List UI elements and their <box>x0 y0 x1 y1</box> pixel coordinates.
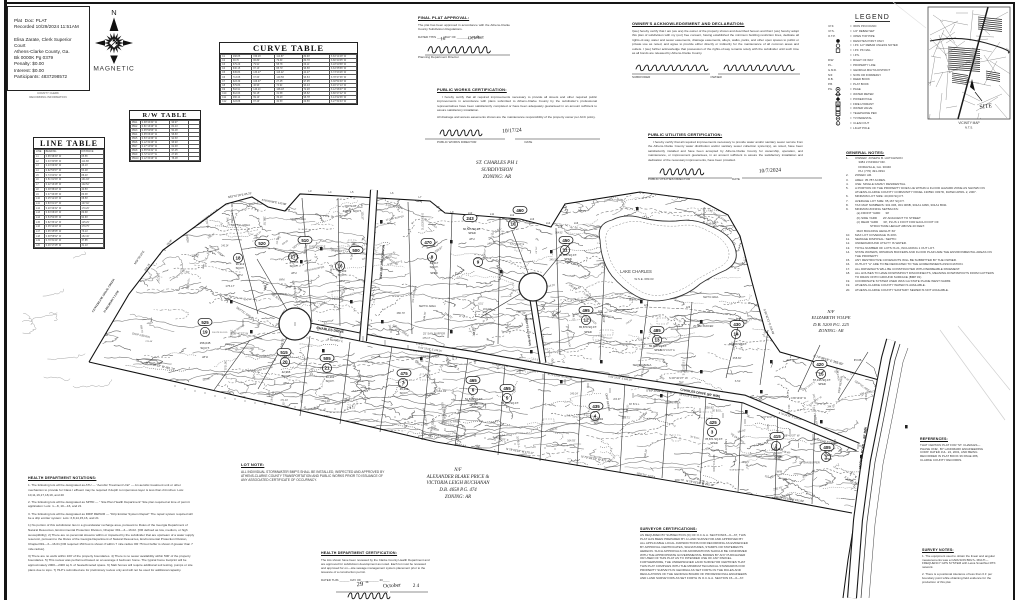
svg-text:118.29': 118.29' <box>547 284 556 289</box>
svg-text:S 81°19'23" E: S 81°19'23" E <box>385 203 403 211</box>
svg-text:N 08°32'07" E: N 08°32'07" E <box>136 395 153 409</box>
svg-text:N 79°33'33" W 477.44': N 79°33'33" W 477.44' <box>581 454 612 463</box>
svg-text:W.S.E. 683.03: W.S.E. 683.03 <box>634 277 654 281</box>
svg-text:280.70': 280.70' <box>397 311 406 315</box>
svg-text:475: 475 <box>400 371 408 376</box>
svg-text:CENTERLINE SHOAL CREEK: CENTERLINE SHOAL CREEK <box>92 278 116 313</box>
svg-text:DRIP REPAIR: DRIP REPAIR <box>875 276 892 289</box>
svg-text:430: 430 <box>733 322 741 327</box>
svg-text:249.31': 249.31' <box>868 330 878 339</box>
svg-text:2642.42: 2642.42 <box>454 442 466 449</box>
svg-text:44,039. SQ.FT.: 44,039. SQ.FT. <box>343 209 362 213</box>
svg-text:DRIP REPAIR: DRIP REPAIR <box>365 455 382 459</box>
svg-text:240.24': 240.24' <box>487 240 497 246</box>
svg-text:N: N <box>111 8 116 17</box>
svg-text:SP&D: SP&D <box>430 271 438 275</box>
svg-text:P.O.B.: P.O.B. <box>854 358 863 362</box>
svg-text:244.70': 244.70' <box>513 491 516 499</box>
svg-text:244.70': 244.70' <box>787 359 796 362</box>
svg-text:OUTLOT A: OUTLOT A <box>345 204 360 208</box>
svg-text:203.97': 203.97' <box>202 377 211 382</box>
svg-text:N58°28'19"E: N58°28'19"E <box>133 250 145 265</box>
svg-text:17: 17 <box>290 255 296 260</box>
svg-text:S 57°20'17" E: S 57°20'17" E <box>761 417 775 419</box>
svg-text:3: 3 <box>711 430 714 435</box>
svg-text:10/17/24: 10/17/24 <box>502 127 522 134</box>
svg-text:271.40': 271.40' <box>280 399 288 402</box>
svg-text:271.40': 271.40' <box>572 481 580 483</box>
svg-text:240.24': 240.24' <box>626 319 634 325</box>
svg-text:148.49': 148.49' <box>833 341 843 350</box>
svg-text:ATU: ATU <box>202 355 208 359</box>
svg-text:13: 13 <box>654 338 660 343</box>
svg-text:SP&D: SP&D <box>710 441 718 445</box>
svg-text:DRIP REPAIR: DRIP REPAIR <box>581 473 599 481</box>
svg-text:164.93': 164.93' <box>870 219 873 227</box>
svg-text:S 81°19'23" E: S 81°19'23" E <box>202 415 217 418</box>
svg-text:495: 495 <box>582 308 590 313</box>
svg-text:7: 7 <box>402 381 405 386</box>
svg-text:N 08°32'07" E: N 08°32'07" E <box>228 475 245 479</box>
svg-text:243: 243 <box>466 216 474 221</box>
svg-text:S 81°19'23" E: S 81°19'23" E <box>790 210 806 223</box>
svg-text:ATU: ATU <box>237 273 242 277</box>
svg-text:118.29': 118.29' <box>887 451 893 461</box>
svg-text:18: 18 <box>235 256 241 261</box>
svg-text:L15: L15 <box>558 225 563 229</box>
svg-text:280.70': 280.70' <box>620 484 630 490</box>
svg-text:175.17': 175.17' <box>681 484 689 486</box>
svg-text:30' B.S.L.: 30' B.S.L. <box>515 436 521 449</box>
svg-text:470: 470 <box>424 240 432 245</box>
svg-text:SEPTIC AREA: SEPTIC AREA <box>840 221 856 234</box>
svg-text:S 57°20'17" E: S 57°20'17" E <box>305 488 319 490</box>
svg-text:SEPTIC AREA: SEPTIC AREA <box>703 296 719 299</box>
svg-text:9: 9 <box>477 260 480 265</box>
svg-text:249.31': 249.31' <box>524 470 534 476</box>
svg-text:520: 520 <box>258 241 266 246</box>
svg-text:280.70': 280.70' <box>791 253 795 263</box>
svg-text:249.31': 249.31' <box>328 264 334 274</box>
svg-text:L22: L22 <box>644 303 649 307</box>
svg-text:DRIP REPAIR: DRIP REPAIR <box>651 497 666 500</box>
svg-text:465: 465 <box>469 378 477 383</box>
svg-text:L7: L7 <box>419 195 422 199</box>
svg-text:115.37': 115.37' <box>253 403 261 406</box>
svg-text:October: October <box>468 35 485 41</box>
svg-text:203.97': 203.97' <box>856 277 860 286</box>
svg-text:S 81°19'23" E: S 81°19'23" E <box>294 412 313 420</box>
svg-text:296.90': 296.90' <box>271 467 275 476</box>
svg-text:175.17': 175.17' <box>886 211 892 221</box>
svg-text:455: 455 <box>503 386 511 391</box>
svg-text:SP&D: SP&D <box>564 257 572 261</box>
svg-text:SP&D: SP&D <box>470 402 478 406</box>
svg-text:SEPTIC AREA: SEPTIC AREA <box>665 402 681 405</box>
svg-text:25' SAN BUFFER: 25' SAN BUFFER <box>304 265 325 273</box>
svg-text:164.93': 164.93' <box>426 485 435 489</box>
svg-text:25' SAN BUFFER: 25' SAN BUFFER <box>385 215 404 222</box>
svg-text:450: 450 <box>562 238 570 243</box>
svg-text:460: 460 <box>516 208 524 213</box>
svg-text:S 08°40'37" W: S 08°40'37" W <box>840 219 858 227</box>
svg-text:4: 4 <box>594 414 597 419</box>
svg-text:DRIP REPAIR: DRIP REPAIR <box>830 292 845 298</box>
svg-text:258.82': 258.82' <box>366 448 376 457</box>
svg-text:51,818 SQ.FT.: 51,818 SQ.FT. <box>465 397 483 401</box>
svg-text:S 81°19'23" E: S 81°19'23" E <box>875 299 882 317</box>
svg-text:W/M: W/M <box>560 491 567 496</box>
svg-text:ATU: ATU <box>469 237 474 241</box>
svg-text:30' B.S.L.: 30' B.S.L. <box>690 435 701 440</box>
svg-text:W/M: W/M <box>279 277 285 281</box>
svg-text:148.49': 148.49' <box>266 432 274 438</box>
svg-text:N 89°19'23" W: N 89°19'23" W <box>791 398 807 400</box>
svg-text:11: 11 <box>563 248 568 253</box>
svg-text:148.49': 148.49' <box>868 472 876 476</box>
svg-text:116.71': 116.71' <box>742 461 750 464</box>
svg-text:515: 515 <box>280 350 288 355</box>
svg-text:30' B.S.L.: 30' B.S.L. <box>712 409 723 412</box>
svg-text:116.71': 116.71' <box>787 404 791 413</box>
svg-text:25' SAN BUFFER: 25' SAN BUFFER <box>799 461 820 465</box>
svg-text:VICINITY MAP: VICINITY MAP <box>958 121 979 125</box>
svg-text:ATU: ATU <box>339 279 344 283</box>
svg-text:14: 14 <box>733 332 739 337</box>
svg-text:258.82': 258.82' <box>705 406 714 410</box>
svg-text:S 57°20'17" E: S 57°20'17" E <box>407 460 411 478</box>
svg-text:6.51': 6.51' <box>781 256 783 261</box>
svg-text:164.93': 164.93' <box>737 428 747 434</box>
svg-text:6.51': 6.51' <box>478 303 484 305</box>
svg-text:164.93': 164.93' <box>437 389 447 393</box>
svg-text:175.17': 175.17' <box>422 337 431 340</box>
svg-text:6: 6 <box>472 388 475 393</box>
svg-text:100 YR FLOOD: 100 YR FLOOD <box>730 433 745 444</box>
svg-text:DRIP REPAIR: DRIP REPAIR <box>604 393 611 412</box>
svg-text:10/7/2024: 10/7/2024 <box>759 167 782 174</box>
svg-text:244.70': 244.70' <box>422 311 428 321</box>
svg-text:SEPTIC AREA: SEPTIC AREA <box>208 438 223 441</box>
svg-text:S 81°19'23" E: S 81°19'23" E <box>724 439 726 453</box>
svg-text:SQ.FT.: SQ.FT. <box>236 266 245 270</box>
svg-text:148.49': 148.49' <box>431 494 441 498</box>
svg-text:S 08°40'37" W: S 08°40'37" W <box>453 479 470 492</box>
svg-text:244.70': 244.70' <box>572 314 574 322</box>
svg-text:20: 20 <box>282 360 288 365</box>
svg-text:SEPTIC AREA: SEPTIC AREA <box>758 243 774 249</box>
svg-text:100 YR FLOOD: 100 YR FLOOD <box>212 332 228 334</box>
svg-text:78.03': 78.03' <box>165 238 173 246</box>
svg-text:271.40': 271.40' <box>534 247 536 255</box>
svg-text:30' B.S.L.: 30' B.S.L. <box>629 402 640 406</box>
svg-text:258.82': 258.82' <box>733 356 742 360</box>
svg-text:6.51': 6.51' <box>735 379 742 383</box>
svg-text:118.29': 118.29' <box>215 486 221 496</box>
svg-text:271.40': 271.40' <box>145 341 153 343</box>
svg-text:L21: L21 <box>598 309 603 313</box>
svg-text:October: October <box>383 582 401 589</box>
svg-text:115.37': 115.37' <box>764 474 774 480</box>
svg-text:SEPTIC AREA: SEPTIC AREA <box>633 363 652 367</box>
svg-text:249.31': 249.31' <box>147 464 156 467</box>
svg-text:6.51': 6.51' <box>835 372 840 374</box>
svg-text:5: 5 <box>506 396 509 401</box>
svg-text:N 08°32'07" E: N 08°32'07" E <box>702 207 705 223</box>
svg-text:15: 15 <box>818 372 824 377</box>
svg-text:L3: L3 <box>309 189 312 193</box>
svg-text:S 08°40'37" W: S 08°40'37" W <box>669 376 688 380</box>
svg-text:29: 29 <box>356 581 363 588</box>
svg-text:280.70': 280.70' <box>191 479 199 483</box>
svg-text:16: 16 <box>337 264 343 269</box>
svg-text:SEPTIC AREA: SEPTIC AREA <box>174 440 194 448</box>
svg-text:L5: L5 <box>351 190 354 194</box>
svg-text:L6: L6 <box>391 191 394 195</box>
svg-text:280.70': 280.70' <box>773 485 784 491</box>
svg-text:66,809 SQ.FT.: 66,809 SQ.FT. <box>729 342 747 346</box>
svg-text:DRIP REPAIR: DRIP REPAIR <box>858 343 874 346</box>
svg-text:12: 12 <box>583 318 589 323</box>
svg-text:118.29': 118.29' <box>194 397 201 403</box>
svg-text:115.37': 115.37' <box>191 254 199 257</box>
svg-text:SP&D: SP&D <box>654 348 662 352</box>
svg-text:510: 510 <box>301 238 309 243</box>
svg-text:271.40': 271.40' <box>484 479 494 488</box>
svg-text:148.49': 148.49' <box>471 326 477 336</box>
svg-text:S 50°32'21" E 148.49': S 50°32'21" E 148.49' <box>762 308 775 335</box>
svg-text:116.71': 116.71' <box>743 317 753 326</box>
svg-text:271.40': 271.40' <box>467 468 471 477</box>
svg-text:240.24': 240.24' <box>840 323 843 331</box>
svg-text:249.31': 249.31' <box>367 381 371 391</box>
svg-text:249.31': 249.31' <box>347 406 356 410</box>
svg-text:100 YR FLOOD: 100 YR FLOOD <box>164 198 171 217</box>
svg-text:203.97': 203.97' <box>483 307 492 311</box>
svg-text:425: 425 <box>709 420 717 425</box>
svg-text:118.29': 118.29' <box>388 324 394 334</box>
svg-text:485: 485 <box>653 328 661 333</box>
svg-text:65,879 SQ.FT.: 65,879 SQ.FT. <box>579 325 597 329</box>
svg-text:271.40': 271.40' <box>321 399 330 403</box>
svg-text:115.37': 115.37' <box>555 467 565 473</box>
svg-text:249.31': 249.31' <box>241 320 244 328</box>
svg-text:SQ.FT.: SQ.FT. <box>326 379 335 383</box>
svg-text:ATU: ATU <box>291 271 296 275</box>
svg-text:240.24': 240.24' <box>570 393 579 396</box>
svg-text:W/M: W/M <box>659 375 665 380</box>
svg-text:100 YR FLOOD: 100 YR FLOOD <box>712 454 715 471</box>
svg-text:505: 505 <box>323 356 331 361</box>
svg-text:SQ.FT.: SQ.FT. <box>200 346 210 350</box>
svg-text:19: 19 <box>202 330 208 335</box>
svg-text:LAKE CHARLES: LAKE CHARLES <box>620 269 652 274</box>
svg-text:148.49': 148.49' <box>609 489 617 492</box>
svg-text:435: 435 <box>592 404 600 409</box>
svg-text:2: 2 <box>775 444 778 449</box>
svg-text:240.24': 240.24' <box>643 448 648 458</box>
svg-text:th: th <box>366 580 369 584</box>
svg-text:18: 18 <box>440 37 446 42</box>
svg-text:271.40': 271.40' <box>208 448 217 451</box>
svg-text:SQ.FT.: SQ.FT. <box>290 264 299 268</box>
svg-text:8: 8 <box>431 255 434 260</box>
svg-text:240.24': 240.24' <box>221 246 229 248</box>
svg-text:420: 420 <box>816 362 824 367</box>
svg-text:SEPTIC AREA: SEPTIC AREA <box>135 478 152 482</box>
svg-text:SP&D: SP&D <box>468 231 476 235</box>
svg-text:296.90': 296.90' <box>889 280 899 289</box>
svg-text:258.82': 258.82' <box>350 484 360 488</box>
svg-text:SQ.FT.: SQ.FT. <box>282 374 291 378</box>
svg-text:S 57°20'17" E: S 57°20'17" E <box>448 463 464 467</box>
svg-text:L12: L12 <box>510 213 515 217</box>
svg-text:2 4: 2 4 <box>413 584 420 589</box>
svg-text:SEPTIC AREA: SEPTIC AREA <box>302 475 308 491</box>
svg-text:S 08°40'37" W: S 08°40'37" W <box>483 245 488 261</box>
svg-text:118.29': 118.29' <box>270 415 279 419</box>
svg-text:ATU: ATU <box>283 381 288 385</box>
svg-text:S 81°19'23" E: S 81°19'23" E <box>309 245 326 249</box>
svg-text:SEPTIC AREA: SEPTIC AREA <box>231 223 251 227</box>
svg-text:SEPTIC AREA: SEPTIC AREA <box>419 304 436 308</box>
svg-text:S 81°19'23" E: S 81°19'23" E <box>660 350 675 352</box>
svg-text:100 YR FLOOD: 100 YR FLOOD <box>291 280 298 301</box>
svg-text:100 YR FLOOD: 100 YR FLOOD <box>802 238 819 241</box>
svg-text:148.49': 148.49' <box>781 449 791 455</box>
svg-text:244.70': 244.70' <box>290 456 300 462</box>
svg-text:N 08°32'07" E: N 08°32'07" E <box>166 481 184 488</box>
svg-text:S 08°40'37" W: S 08°40'37" W <box>190 406 206 419</box>
svg-text:148.49': 148.49' <box>568 283 579 292</box>
svg-text:249.31': 249.31' <box>207 232 216 239</box>
svg-text:148.49': 148.49' <box>312 439 320 441</box>
svg-text:244.70': 244.70' <box>827 406 835 408</box>
svg-text:280.70': 280.70' <box>263 217 267 226</box>
svg-text:S 08°40'37" W: S 08°40'37" W <box>729 470 744 472</box>
svg-text:S 81°19'23" E: S 81°19'23" E <box>420 213 424 230</box>
svg-text:25' SAN BUFFER: 25' SAN BUFFER <box>423 332 445 336</box>
svg-text:L23: L23 <box>686 305 691 309</box>
svg-text:L16: L16 <box>574 221 579 225</box>
svg-text:164.93': 164.93' <box>247 493 255 495</box>
svg-text:405: 405 <box>823 445 831 450</box>
svg-text:100 YR FLOOD: 100 YR FLOOD <box>566 332 571 348</box>
svg-text:S 81°19'23" E: S 81°19'23" E <box>884 388 901 392</box>
svg-text:25' SAN BUFFER: 25' SAN BUFFER <box>693 324 713 328</box>
svg-text:525: 525 <box>201 320 209 325</box>
svg-text:500: 500 <box>352 248 360 253</box>
svg-text:S 81°19'23" E: S 81°19'23" E <box>802 381 816 392</box>
svg-text:N 89°19'23" W: N 89°19'23" W <box>599 314 615 319</box>
svg-text:SEPTIC AREA: SEPTIC AREA <box>881 216 896 228</box>
svg-text:21: 21 <box>324 366 330 371</box>
svg-text:SQ.FT.: SQ.FT. <box>400 391 409 395</box>
svg-text:SQ.FT.: SQ.FT. <box>594 421 603 425</box>
svg-text:175.17': 175.17' <box>225 284 235 288</box>
svg-text:S 08°40'37" W: S 08°40'37" W <box>451 461 465 471</box>
svg-text:30' B.S.L.: 30' B.S.L. <box>766 263 776 265</box>
svg-text:SQ.FT.: SQ.FT. <box>430 265 439 269</box>
svg-text:SP&D: SP&D <box>818 382 826 386</box>
svg-text:156,045: 156,045 <box>200 341 211 345</box>
svg-text:203.97': 203.97' <box>613 398 621 401</box>
svg-text:L11: L11 <box>490 212 495 216</box>
svg-text:296.90': 296.90' <box>793 206 798 215</box>
svg-text:118.29': 118.29' <box>282 240 289 246</box>
svg-text:L13: L13 <box>530 217 535 221</box>
svg-text:SP&D: SP&D <box>584 330 592 334</box>
svg-text:W/M: W/M <box>433 427 440 432</box>
svg-text:415: 415 <box>773 434 781 439</box>
svg-text:164.93': 164.93' <box>567 439 576 442</box>
svg-text:280.70': 280.70' <box>622 481 628 492</box>
svg-text:SQ.FT.: SQ.FT. <box>338 273 347 277</box>
svg-text:30' B.S.L.: 30' B.S.L. <box>186 277 191 288</box>
svg-text:MAGNETIC: MAGNETIC <box>93 66 134 73</box>
svg-text:10: 10 <box>510 222 516 227</box>
svg-text:N.T.S.: N.T.S. <box>965 126 973 130</box>
svg-text:115.37': 115.37' <box>834 352 843 356</box>
svg-text:L14: L14 <box>546 221 551 225</box>
svg-text:30' B.S.L.: 30' B.S.L. <box>813 324 819 337</box>
svg-text:1: 1 <box>825 455 828 460</box>
svg-text:SP&D: SP&D <box>774 455 782 459</box>
svg-text:W/M: W/M <box>777 471 782 474</box>
svg-text:271.40': 271.40' <box>602 315 605 323</box>
svg-text:L4: L4 <box>329 190 332 194</box>
svg-text:S 81°19'23" E: S 81°19'23" E <box>133 432 150 446</box>
